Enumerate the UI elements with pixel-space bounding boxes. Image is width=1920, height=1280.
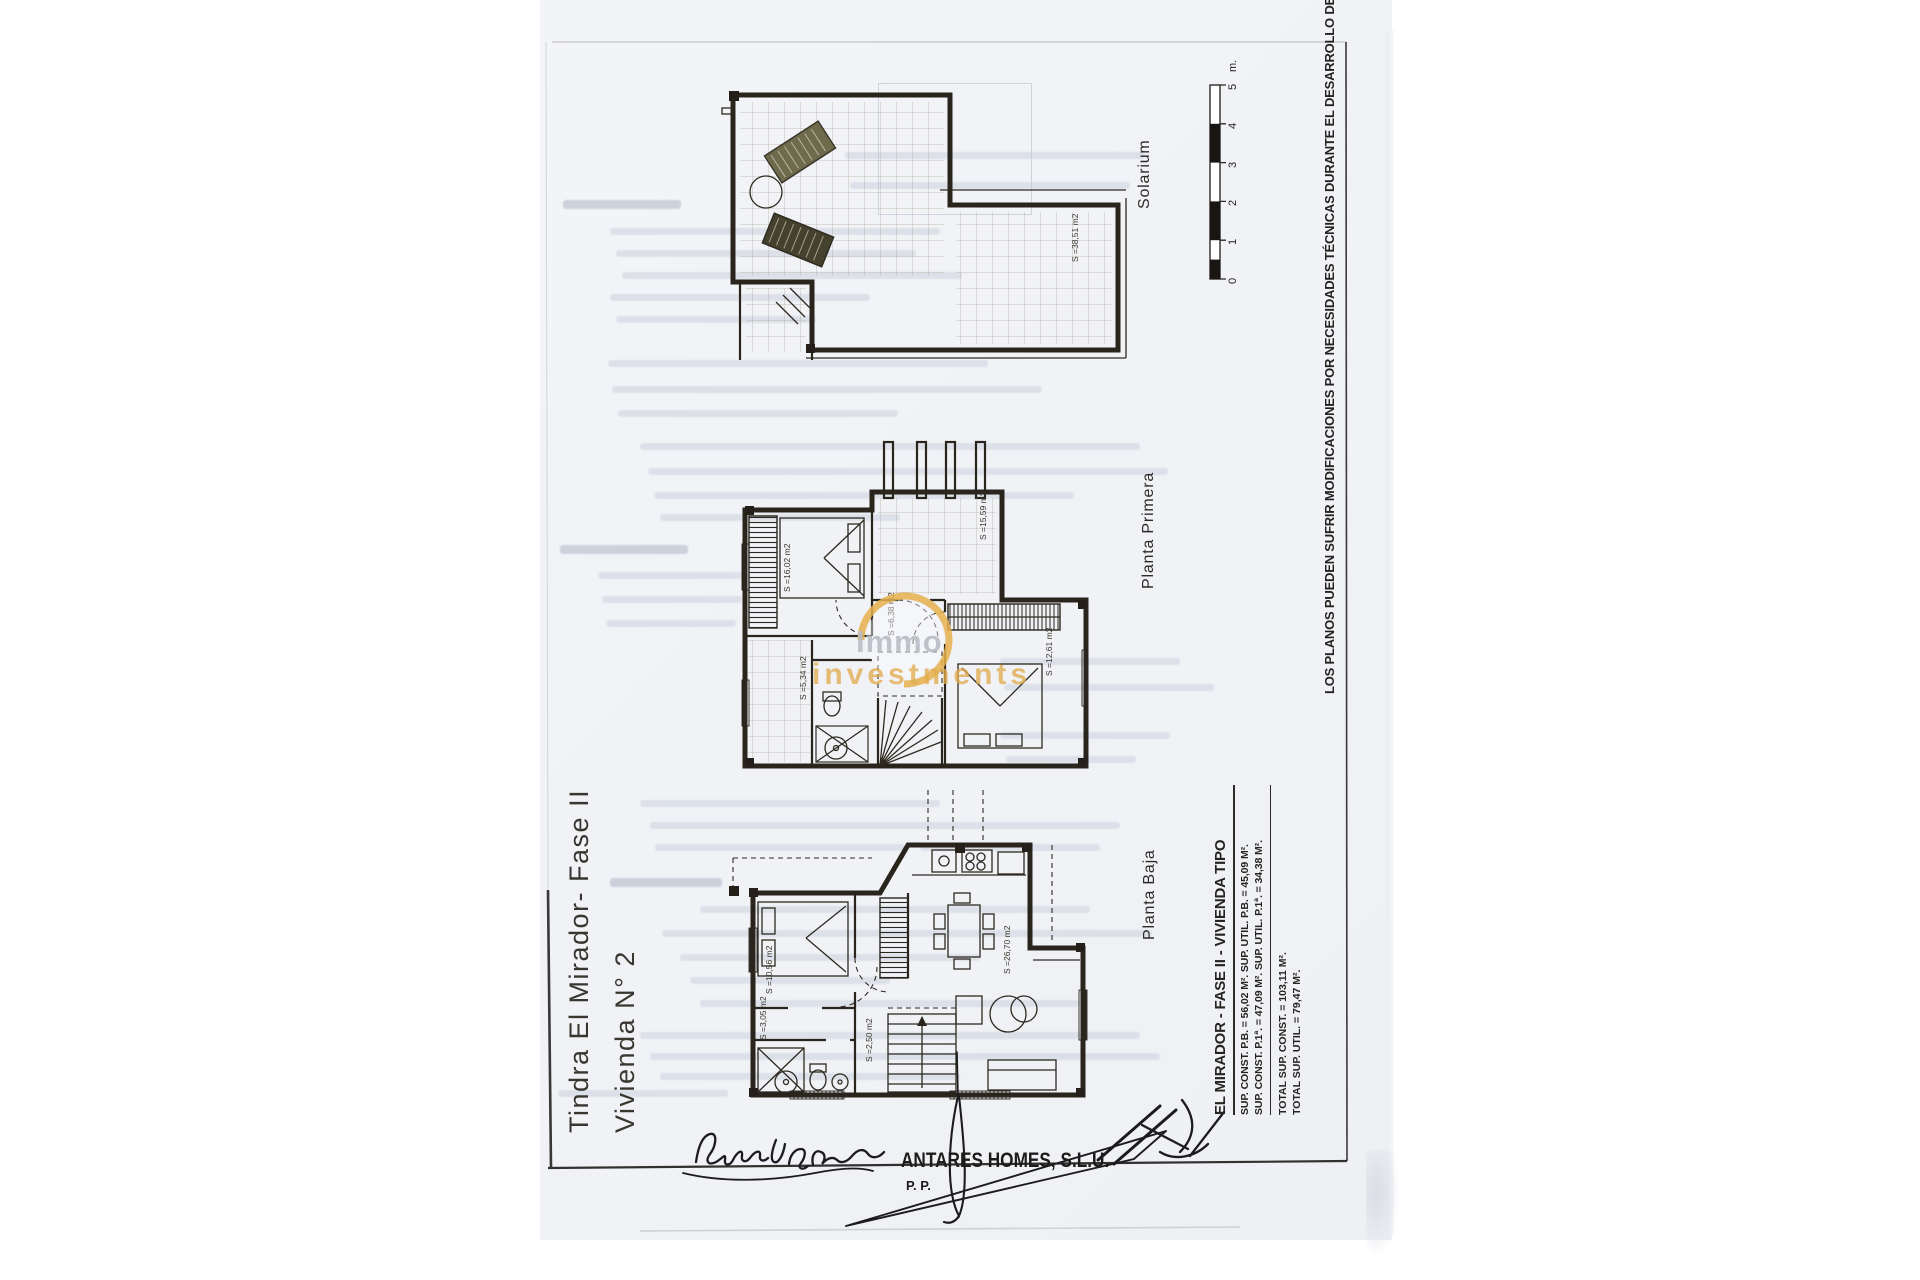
scale-tick-label: 3	[1227, 162, 1239, 168]
room-area-label: S =15,59 m2	[978, 491, 988, 540]
kitchen-icons	[912, 843, 1026, 875]
scale-unit-label: m.	[1227, 60, 1239, 72]
stats-line-pb: SUP. CONST. P.B. = 56,02 M². SUP. UTIL. …	[1238, 785, 1252, 1115]
watermark-word-immo: Immo	[856, 624, 943, 660]
scanned-floorplan-document: S =38,51 m2	[0, 0, 1920, 1280]
drawing-title-line1: Tindra El Mirador- Fase II	[556, 789, 602, 1133]
plan-label-planta-primera: Planta Primera	[1140, 472, 1158, 589]
company-name: ANTARES HOMES, S.L.U.	[901, 1149, 1109, 1173]
stats-total-const: TOTAL SUP. CONST. = 103,11 M².	[1276, 785, 1290, 1115]
surface-stats-block: EL MIRADOR - FASE II - VIVIENDA TIPO SUP…	[1212, 785, 1304, 1115]
round-table-icon	[990, 996, 1037, 1032]
room-area-label: S =12,61 m2	[1044, 627, 1054, 676]
floor-plan-planta-baja: S =10,56 m2 S =26,70 m2 S =3,05 m2 S =2,…	[729, 790, 1087, 1099]
pp-abbreviation: P. P.	[906, 1178, 931, 1193]
scale-tick-label: 1	[1227, 239, 1239, 245]
dining-table-icon	[934, 893, 994, 969]
scale-bar: 0 1 2 3 4 5 m.	[1210, 60, 1239, 284]
bed-icon	[780, 518, 864, 598]
room-area-label: S =3,05 m2	[758, 996, 768, 1040]
stats-total-util: TOTAL SUP. UTIL. = 79,47 M².	[1290, 785, 1304, 1115]
room-area-label: S =26,70 m2	[1002, 925, 1012, 974]
scale-tick-label: 0	[1227, 278, 1239, 284]
room-area-label: S =10,56 m2	[764, 945, 774, 994]
floor-plan-drawing: S =38,51 m2	[0, 0, 1920, 1280]
floor-plan-solarium: S =38,51 m2	[722, 91, 1126, 360]
room-area-label: S =16,02 m2	[782, 543, 792, 592]
solarium-area-label: S =38,51 m2	[1070, 213, 1080, 262]
plan-label-planta-baja: Planta Baja	[1141, 849, 1159, 940]
modifications-disclaimer: LOS PLANOS PUEDEN SUFRIR MODIFICACIONES …	[1322, 0, 1337, 694]
room-area-label: S =2,50 m2	[864, 1018, 874, 1062]
handwritten-signature	[683, 1052, 1224, 1226]
scale-tick-label: 5	[1227, 84, 1239, 90]
scale-tick-label: 4	[1227, 123, 1239, 129]
scale-tick-label: 2	[1227, 200, 1239, 206]
stats-line-p1: SUP. CONST. P.1ª. = 47,09 M². SUP. UTIL.…	[1252, 785, 1266, 1115]
toilet-icon	[823, 692, 841, 716]
sofa-icon	[956, 996, 1056, 1090]
drawing-title-line2: Vivienda N° 2	[602, 789, 648, 1133]
watermark-word-investments: investments	[812, 658, 1031, 692]
plan-label-solarium: Solarium	[1136, 139, 1154, 209]
room-area-label: S =5,34 m2	[798, 656, 808, 700]
drawing-title: Tindra El Mirador- Fase II Vivienda N° 2	[556, 789, 648, 1133]
toilet-icon	[810, 1064, 826, 1090]
stats-heading: EL MIRADOR - FASE II - VIVIENDA TIPO	[1212, 785, 1235, 1115]
wardrobe-icon	[749, 516, 777, 628]
